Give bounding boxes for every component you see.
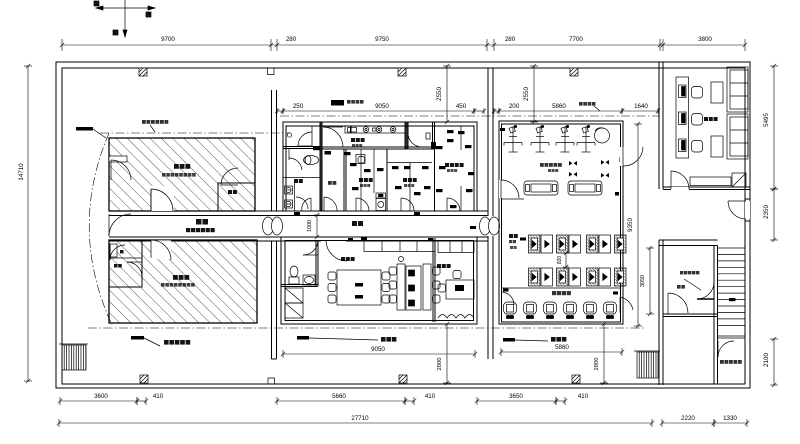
svg-text:3050: 3050 [640,275,646,287]
svg-text:1640: 1640 [634,103,648,110]
svg-text:3800: 3800 [698,36,712,43]
svg-text:5660: 5660 [332,393,346,400]
svg-text:2100: 2100 [763,353,770,367]
svg-text:9050: 9050 [375,103,389,110]
svg-text:3650: 3650 [509,393,523,400]
svg-text:1000: 1000 [307,220,313,232]
svg-text:2350: 2350 [763,205,770,219]
svg-text:280: 280 [286,36,297,43]
svg-text:1330: 1330 [723,415,737,422]
svg-text:250: 250 [293,103,304,110]
svg-text:410: 410 [578,393,589,400]
svg-text:9700: 9700 [161,36,175,43]
svg-text:2220: 2220 [681,415,695,422]
svg-text:14710: 14710 [18,163,25,181]
svg-text:27710: 27710 [351,415,369,422]
svg-text:200: 200 [509,103,520,110]
svg-text:7700: 7700 [569,36,583,43]
svg-text:450: 450 [456,103,467,110]
svg-text:9750: 9750 [375,36,389,43]
svg-text:820: 820 [557,256,563,265]
svg-text:2550: 2550 [436,87,443,101]
svg-text:5860: 5860 [555,344,569,351]
svg-text:410: 410 [425,393,436,400]
svg-text:2800: 2800 [437,358,443,371]
svg-text:410: 410 [153,393,164,400]
svg-text:280: 280 [505,36,516,43]
svg-text:5495: 5495 [763,113,770,127]
svg-text:2550: 2550 [523,87,530,101]
svg-text:9350: 9350 [627,218,634,232]
svg-text:3600: 3600 [94,393,108,400]
svg-text:5860: 5860 [552,103,566,110]
svg-text:2800: 2800 [594,358,600,371]
svg-text:9050: 9050 [371,346,385,353]
